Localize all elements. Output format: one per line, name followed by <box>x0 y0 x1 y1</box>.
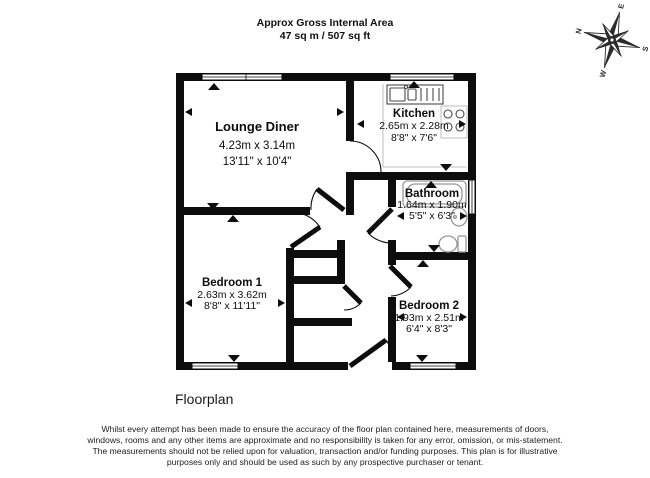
compass-rose-icon: N E S W <box>564 0 650 87</box>
lounge-door <box>311 189 344 210</box>
disclaimer-text: Whilst every attempt has been made to en… <box>84 424 566 468</box>
room-imperial-bedroom1: 8'8" x 11'11" <box>204 300 260 312</box>
room-name-kitchen: Kitchen <box>393 108 435 120</box>
bathroom-door <box>368 209 392 243</box>
bedroom2-window <box>410 363 456 369</box>
cupboard-door <box>344 286 361 310</box>
room-imperial-lounge: 13'11" x 10'4" <box>223 156 292 168</box>
kitchen-window <box>390 74 454 80</box>
room-name-bedroom2: Bedroom 2 <box>399 300 459 312</box>
room-metric-kitchen: 2.65m x 2.28m <box>379 120 449 132</box>
compass-north-label: N <box>574 27 584 35</box>
lounge-window <box>202 74 282 80</box>
room-name-lounge: Lounge Diner <box>215 119 299 134</box>
compass-south-label: S <box>640 45 650 52</box>
floorplan-drawing: Lounge Diner 4.23m x 3.14m 13'11" x 10'4… <box>0 0 650 478</box>
bedroom2-door <box>390 266 411 296</box>
room-name-bedroom1: Bedroom 1 <box>202 277 263 289</box>
room-imperial-kitchen: 8'8" x 7'6" <box>391 132 437 144</box>
room-imperial-bedroom2: 6'4" x 8'3" <box>406 323 452 335</box>
bedroom1-window <box>192 363 238 369</box>
plan-caption: Floorplan <box>175 391 233 407</box>
kitchen-door-arc <box>350 141 381 172</box>
entrance-door <box>350 340 394 366</box>
toilet-icon <box>439 236 466 252</box>
compass-west-label: W <box>598 68 609 78</box>
floorplan-page: Approx Gross Internal Area 47 sq m / 507… <box>0 0 650 478</box>
bathroom-window <box>469 180 475 214</box>
bedroom1-door <box>291 212 320 247</box>
room-metric-lounge: 4.23m x 3.14m <box>219 140 295 152</box>
room-imperial-bathroom: 5'5" x 6'3" <box>409 210 455 222</box>
compass-east-label: E <box>616 3 626 10</box>
